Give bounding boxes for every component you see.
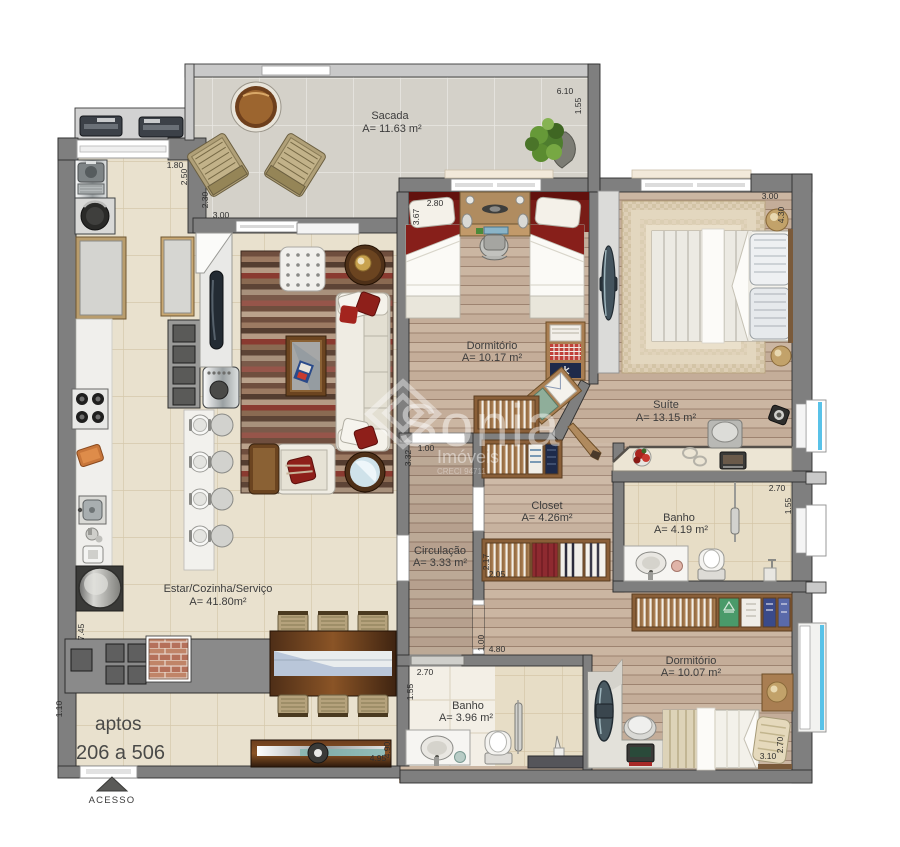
svg-text:2.30: 2.30 — [200, 191, 210, 208]
svg-text:2.50: 2.50 — [179, 168, 189, 185]
svg-text:3.10: 3.10 — [760, 751, 777, 761]
svg-text:4.80: 4.80 — [489, 644, 506, 654]
svg-text:A= 3.33 m²: A= 3.33 m² — [413, 557, 467, 569]
svg-text:A= 11.63 m²: A= 11.63 m² — [362, 123, 422, 135]
svg-text:CRECI 94711: CRECI 94711 — [437, 467, 486, 476]
svg-text:1.10: 1.10 — [54, 700, 64, 717]
svg-text:2.17: 2.17 — [481, 553, 491, 570]
svg-text:2.70: 2.70 — [775, 736, 785, 753]
svg-text:A= 4.19 m²: A= 4.19 m² — [654, 524, 708, 536]
svg-text:A= 13.15 m²: A= 13.15 m² — [636, 412, 697, 424]
svg-text:3.00: 3.00 — [762, 191, 779, 201]
svg-text:ACESSO: ACESSO — [89, 795, 136, 806]
svg-text:3.32: 3.32 — [403, 449, 413, 466]
svg-text:Banho: Banho — [663, 512, 695, 524]
svg-text:1.55: 1.55 — [573, 97, 583, 114]
svg-text:1.80: 1.80 — [167, 160, 184, 170]
svg-text:2.80: 2.80 — [427, 198, 444, 208]
svg-text:2.05: 2.05 — [489, 569, 506, 579]
svg-text:Dormitório: Dormitório — [467, 340, 518, 352]
svg-text:Sacada: Sacada — [371, 110, 409, 122]
svg-text:3.00: 3.00 — [213, 210, 230, 220]
svg-text:Dormitório: Dormitório — [666, 655, 717, 667]
svg-text:Circulação: Circulação — [414, 545, 466, 557]
svg-text:1.00: 1.00 — [476, 634, 486, 651]
svg-text:2.70: 2.70 — [417, 667, 434, 677]
svg-text:3.67: 3.67 — [411, 208, 421, 225]
svg-text:206 a 506: 206 a 506 — [76, 742, 165, 764]
svg-text:Imóveis: Imóveis — [437, 447, 499, 467]
svg-text:1.55: 1.55 — [405, 683, 415, 700]
svg-text:1.00: 1.00 — [418, 443, 435, 453]
svg-text:7.45: 7.45 — [76, 623, 86, 640]
svg-text:4.30: 4.30 — [776, 206, 786, 223]
svg-text:A= 3.96 m²: A= 3.96 m² — [439, 712, 493, 724]
svg-text:A= 41.80m²: A= 41.80m² — [189, 596, 247, 608]
svg-text:Closet: Closet — [531, 500, 562, 512]
svg-text:A= 10.07 m²: A= 10.07 m² — [661, 667, 722, 679]
svg-text:aptos: aptos — [95, 714, 141, 735]
svg-text:Banho: Banho — [452, 700, 484, 712]
svg-text:6.10: 6.10 — [557, 86, 574, 96]
svg-text:Suíte: Suíte — [653, 399, 679, 411]
svg-text:A= 4.26m²: A= 4.26m² — [521, 512, 572, 524]
svg-text:A= 10.17 m²: A= 10.17 m² — [462, 352, 523, 364]
svg-text:1.55: 1.55 — [783, 497, 793, 514]
svg-text:2.70: 2.70 — [769, 483, 786, 493]
svg-text:4.90: 4.90 — [382, 741, 392, 758]
svg-text:Estar/Cozinha/Serviço: Estar/Cozinha/Serviço — [164, 583, 273, 595]
